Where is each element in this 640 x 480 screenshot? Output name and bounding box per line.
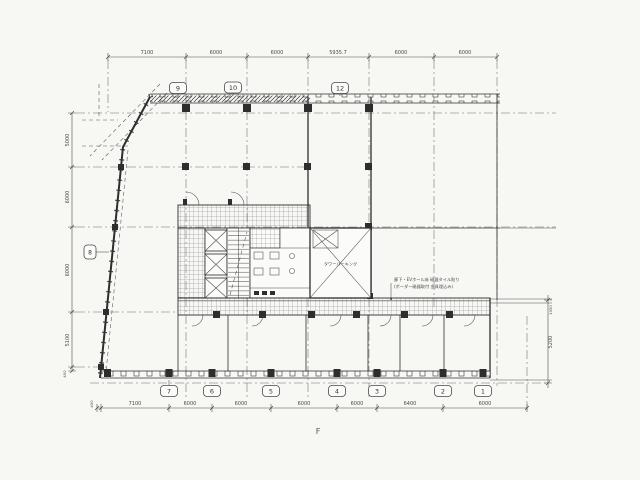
dim-left-4: 5100 xyxy=(65,334,71,347)
toilet-block xyxy=(250,228,310,298)
bottom-exterior-wall xyxy=(101,369,490,378)
grid-bubble-left: 8 xyxy=(84,245,109,259)
elevator-lobby-tiled xyxy=(178,228,205,298)
svg-text:5: 5 xyxy=(269,388,273,396)
right-dimension-line: 1050 5200 xyxy=(544,295,554,388)
dim-bottom-7: 6400 xyxy=(404,401,417,407)
svg-text:4: 4 xyxy=(335,388,339,396)
door-arc xyxy=(380,315,391,326)
svg-text:7: 7 xyxy=(167,388,171,396)
grid-bubble-3: 3 xyxy=(369,386,386,397)
annotation-line-2: (ボーダー磁器取付 金具埋込み) xyxy=(394,283,453,290)
finish-annotation: 廊下・EVホール床 磁器タイル貼り (ボーダー磁器取付 金具埋込み) xyxy=(390,276,459,300)
corridor xyxy=(178,298,490,315)
grid-bubble-5: 5 xyxy=(263,386,280,397)
dim-bottom-6: 6000 xyxy=(351,401,364,407)
site-boundary-construction-lines xyxy=(82,84,172,372)
dim-bottom-2: 7100 xyxy=(129,401,142,407)
tower-parking-shaft: タワーパーキング xyxy=(310,228,371,298)
grid-bubble-2: 2 xyxy=(435,386,452,397)
door-arc xyxy=(192,315,203,326)
dim-bottom-8: 6000 xyxy=(479,401,492,407)
dim-left-2: 6000 xyxy=(65,191,71,204)
tower-parking-label: タワーパーキング xyxy=(324,261,357,268)
door-arc xyxy=(464,315,475,326)
svg-text:3: 3 xyxy=(375,388,379,396)
building-core: タワーパーキング xyxy=(178,192,371,298)
door-arc xyxy=(186,192,199,205)
annotation-line-1: 廊下・EVホール床 磁器タイル貼り xyxy=(394,276,459,283)
svg-text:12: 12 xyxy=(336,85,344,93)
left-dimension-line: 5000 6000 6000 5100 400 xyxy=(62,111,76,378)
top-exterior-wall xyxy=(150,94,500,112)
grid-bubble-7: 7 xyxy=(161,380,178,397)
elevator-shaft xyxy=(205,254,227,275)
door-arc xyxy=(231,192,244,205)
staircase xyxy=(227,228,250,298)
dim-right-1: 1050 xyxy=(548,305,553,315)
slanted-boundary-wall xyxy=(98,95,151,378)
dim-left-3: 6000 xyxy=(65,264,71,277)
dim-left-1: 5000 xyxy=(65,134,71,147)
svg-text:9: 9 xyxy=(176,85,180,93)
grid-bubble-1: 1 xyxy=(475,386,492,397)
dim-top-2: 6000 xyxy=(210,50,223,56)
grid-bubble-4: 4 xyxy=(329,386,346,397)
grid-bubble-6: 6 xyxy=(204,386,221,397)
hatched-wall-segment xyxy=(150,96,310,103)
top-dimension-line: 7100 6000 6000 5935.7 6000 6000 xyxy=(106,50,499,61)
dim-bottom-1: 400 xyxy=(89,400,94,408)
figure-label: F xyxy=(316,427,321,436)
svg-text:8: 8 xyxy=(88,250,92,257)
elevator-shaft xyxy=(205,278,227,298)
svg-text:1: 1 xyxy=(481,388,485,396)
bottom-dimension-line: 400 7100 6000 6000 6000 6000 6400 6000 xyxy=(89,400,529,412)
ev-hall-tiled-band xyxy=(178,205,310,228)
svg-text:2: 2 xyxy=(441,388,445,396)
dim-top-3: 6000 xyxy=(271,50,284,56)
dim-top-5: 6000 xyxy=(395,50,408,56)
dim-top-6: 6000 xyxy=(459,50,472,56)
dim-top-4: 5935.7 xyxy=(329,50,347,56)
dim-bottom-4: 6000 xyxy=(235,401,248,407)
floor-plan-canvas: タワーパーキング xyxy=(0,0,640,480)
dim-bottom-3: 6000 xyxy=(184,401,197,407)
elevator-shaft xyxy=(205,230,227,251)
door-arc xyxy=(330,315,341,326)
svg-text:6: 6 xyxy=(210,388,214,396)
scanned-floor-plan-page: タワーパーキング xyxy=(0,0,640,480)
dim-bottom-5: 6000 xyxy=(298,401,311,407)
grid-bubbles-bottom: 7 6 5 4 3 2 1 xyxy=(161,380,492,397)
dim-top-1: 7100 xyxy=(141,50,154,56)
door-arc xyxy=(422,315,433,326)
svg-text:10: 10 xyxy=(229,84,237,92)
dim-left-5: 400 xyxy=(62,370,67,378)
dim-right-2: 5200 xyxy=(548,336,554,349)
right-extension-lines xyxy=(490,299,552,380)
